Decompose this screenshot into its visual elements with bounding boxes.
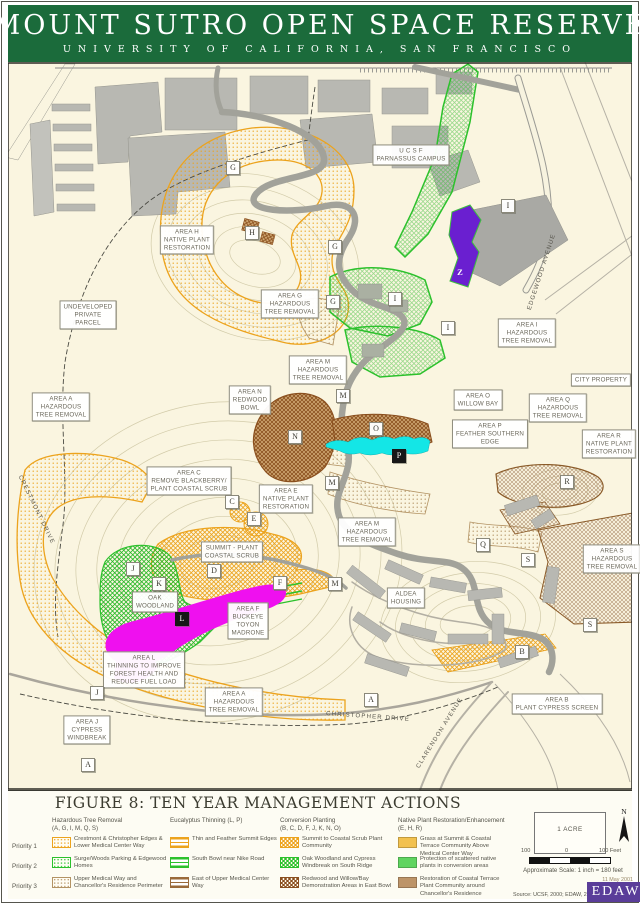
- page-subtitle: UNIVERSITY OF CALIFORNIA, SAN FRANCISCO: [63, 44, 577, 55]
- legend-row: East of Upper Medical Center Way: [170, 876, 280, 896]
- legend-column-3: Conversion Planting(B, C, D, F, J, K, N,…: [280, 817, 398, 896]
- legend-swatch-stripes: [170, 837, 189, 848]
- legend-row-label: Restoration of Coastal Terrace Plant Com…: [420, 876, 510, 898]
- legend-row-label: Summit to Coastal Scrub Plant Community: [302, 836, 398, 851]
- legend-row: Crestmont & Christopher Edges & Lower Me…: [52, 836, 170, 856]
- legend-swatch-solid: [398, 877, 417, 888]
- scale-tick-right: 100 Feet: [599, 848, 621, 854]
- legend-swatch-stripes: [170, 857, 189, 868]
- priority-label-3: Priority 3: [12, 876, 52, 896]
- priority-label-2: Priority 2: [12, 856, 52, 876]
- edaw-logo: EDAW: [587, 882, 640, 902]
- legend-row: Summit to Coastal Scrub Plant Community: [280, 836, 398, 856]
- legend-row: Redwood and Willow/Bay Demonstration Are…: [280, 876, 398, 896]
- scale-bar: [529, 857, 611, 864]
- legend-swatch-solid: [398, 857, 417, 868]
- one-acre-label: 1 ACRE: [557, 826, 582, 833]
- legend-panel: FIGURE 8: TEN YEAR MANAGEMENT ACTIONS Pr…: [8, 790, 632, 899]
- legend-swatch-solid: [398, 837, 417, 848]
- legend-row-label: Grass at Summit & Coastal Terrace Commun…: [420, 836, 510, 858]
- page: MOUNT SUTRO OPEN SPACE RESERVE UNIVERSIT…: [0, 0, 640, 904]
- north-label: N: [618, 807, 630, 816]
- legend-row: Grass at Summit & Coastal Terrace Commun…: [398, 836, 510, 856]
- north-arrow-icon: [618, 816, 630, 842]
- title-banner: MOUNT SUTRO OPEN SPACE RESERVE UNIVERSIT…: [8, 5, 632, 63]
- legend-row: South Bowl near Nike Road: [170, 856, 280, 876]
- legend-columns: Priority 1Priority 2Priority 3Hazardous …: [12, 817, 510, 896]
- legend-row-label: South Bowl near Nike Road: [192, 856, 264, 863]
- priority-label-1: Priority 1: [12, 836, 52, 856]
- legend-swatch-cross: [280, 837, 299, 848]
- map-canvas: [8, 62, 632, 790]
- legend-row-label: East of Upper Medical Center Way: [192, 876, 280, 891]
- map-drawing: [8, 62, 632, 790]
- legend-row: Protection of scattered native plants in…: [398, 856, 510, 876]
- legend-column-header: Eucalyptus Thinning (L, P): [170, 817, 280, 836]
- legend-row-label: Oak Woodland and Cypress Windbreak on So…: [302, 856, 398, 871]
- north-arrow: N: [618, 807, 630, 844]
- legend-row: Upper Medical Way and Chancellor's Resid…: [52, 876, 170, 896]
- legend-column-header: Native Plant Restoration/Enhancement(E, …: [398, 817, 510, 836]
- source-note: Source: UCSF, 2000; EDAW, 2000: [513, 892, 596, 898]
- legend-swatch-dots: [52, 837, 71, 848]
- legend-column-1: Hazardous Tree Removal(A, G, I, M, Q, S)…: [52, 817, 170, 896]
- priority-header: [12, 817, 52, 836]
- legend-row: Restoration of Coastal Terrace Plant Com…: [398, 876, 510, 896]
- legend-row-label: Protection of scattered native plants in…: [420, 856, 510, 871]
- legend-row: Surge/Woods Parking & Edgewood Homes: [52, 856, 170, 876]
- legend-row-label: Thin and Feather Summit Edges: [192, 836, 277, 843]
- legend-swatch-dots: [52, 877, 71, 888]
- legend-column-header: Hazardous Tree Removal(A, G, I, M, Q, S): [52, 817, 170, 836]
- legend-swatch-cross: [280, 877, 299, 888]
- legend-row: Oak Woodland and Cypress Windbreak on So…: [280, 856, 398, 876]
- one-acre-box: 1 ACRE: [534, 812, 606, 854]
- legend-row-label: Redwood and Willow/Bay Demonstration Are…: [302, 876, 398, 891]
- approx-scale-note: Approximate Scale: 1 inch = 180 feet: [513, 867, 633, 874]
- page-title: MOUNT SUTRO OPEN SPACE RESERVE: [0, 12, 640, 40]
- legend-row: Thin and Feather Summit Edges: [170, 836, 280, 856]
- legend-row-label: Upper Medical Way and Chancellor's Resid…: [74, 876, 170, 891]
- legend-swatch-dots: [52, 857, 71, 868]
- priority-column: Priority 1Priority 2Priority 3: [12, 817, 52, 896]
- legend-swatch-cross: [280, 857, 299, 868]
- legend-column-header: Conversion Planting(B, C, D, F, J, K, N,…: [280, 817, 398, 836]
- scale-tick-zero: 0: [565, 848, 568, 854]
- legend-column-4: Native Plant Restoration/Enhancement(E, …: [398, 817, 510, 896]
- legend-column-2: Eucalyptus Thinning (L, P)Thin and Feath…: [170, 817, 280, 896]
- legend-title: FIGURE 8: TEN YEAR MANAGEMENT ACTIONS: [8, 794, 508, 812]
- legend-row-label: Crestmont & Christopher Edges & Lower Me…: [74, 836, 170, 851]
- legend-swatch-stripes: [170, 877, 189, 888]
- scale-tick-left: 100: [521, 848, 530, 854]
- scale-block: 1 ACRE N 100 0 100 Feet Approximate Scal…: [513, 791, 640, 899]
- legend-row-label: Surge/Woods Parking & Edgewood Homes: [74, 856, 170, 871]
